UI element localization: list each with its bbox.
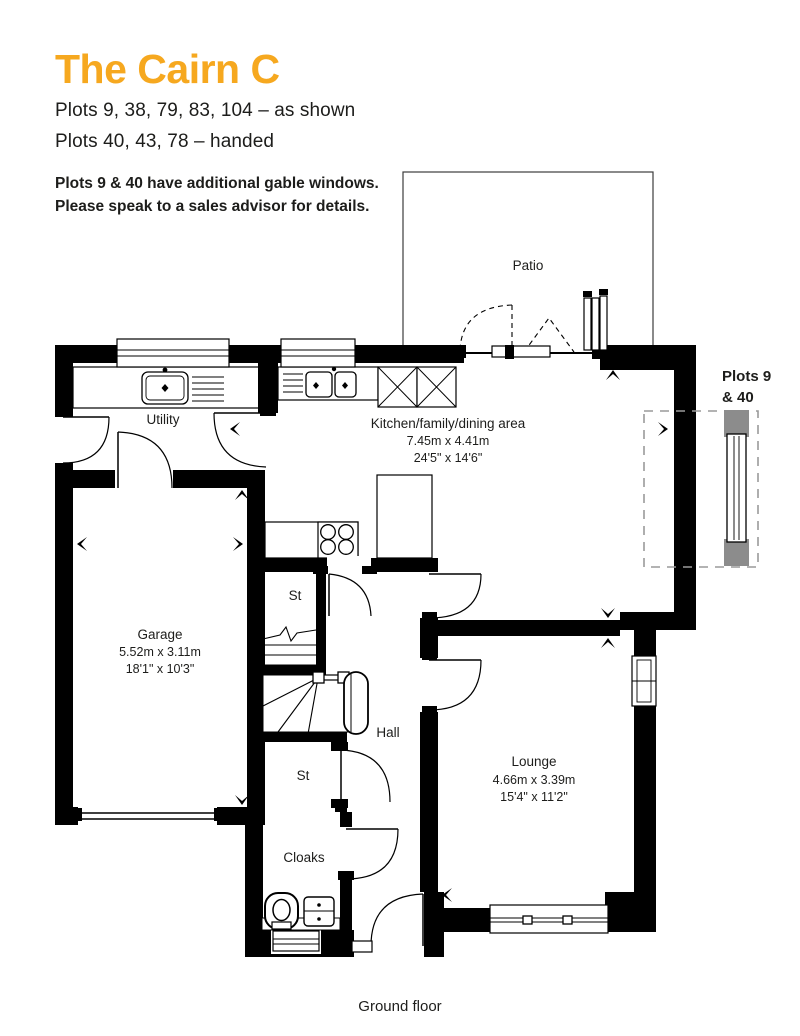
brochure-page: The Cairn C Plots 9, 38, 79, 83, 104 – a… — [0, 0, 800, 1036]
store-upper-door — [329, 574, 371, 616]
lounge-side-window — [632, 656, 656, 706]
gable-window-cap-top — [724, 410, 749, 437]
kitchen-window — [281, 339, 355, 367]
toilet-icon — [265, 893, 298, 929]
patio-label: Patio — [513, 258, 544, 273]
stairs — [263, 627, 368, 734]
utility-window — [117, 339, 229, 367]
utility-label: Utility — [147, 412, 180, 427]
lounge-dim-metric: 4.66m x 3.39m — [493, 773, 576, 787]
plots-annotation-line2: & 40 — [722, 389, 754, 406]
annotation-labels: Plots 9 & 40 — [722, 368, 771, 406]
store-upper-label: St — [289, 588, 302, 603]
store-lower-label: St — [297, 768, 310, 783]
cloaks-fixtures — [262, 893, 340, 930]
garage-dim-metric: 5.52m x 3.11m — [119, 645, 201, 659]
gable-window-cap-bottom — [724, 539, 749, 566]
lounge-label: Lounge — [511, 754, 556, 769]
utility-kitchen-door — [214, 413, 268, 467]
garage-label: Garage — [137, 627, 182, 642]
stair-bullnose — [344, 672, 368, 734]
cloaks-label: Cloaks — [283, 850, 325, 865]
kitchen-dim-imperial: 24'5" x 14'6" — [414, 451, 483, 465]
kitchen-label: Kitchen/family/dining area — [371, 416, 526, 431]
lounge-dim-imperial: 15'4" x 11'2" — [500, 790, 568, 804]
cloaks-window — [273, 931, 319, 951]
lounge-bay-window — [490, 905, 608, 933]
plots-annotation-line1: Plots 9 — [722, 368, 771, 385]
garage-dim-imperial: 18'1" x 10'3" — [126, 662, 195, 676]
floor-label: Ground floor — [358, 998, 441, 1015]
kitchen-dim-metric: 7.45m x 4.41m — [407, 434, 490, 448]
floor-plan: Patio Utility Kitchen/family/dining area… — [0, 0, 800, 1036]
basin-icon — [304, 897, 334, 926]
hall-label: Hall — [376, 725, 399, 740]
